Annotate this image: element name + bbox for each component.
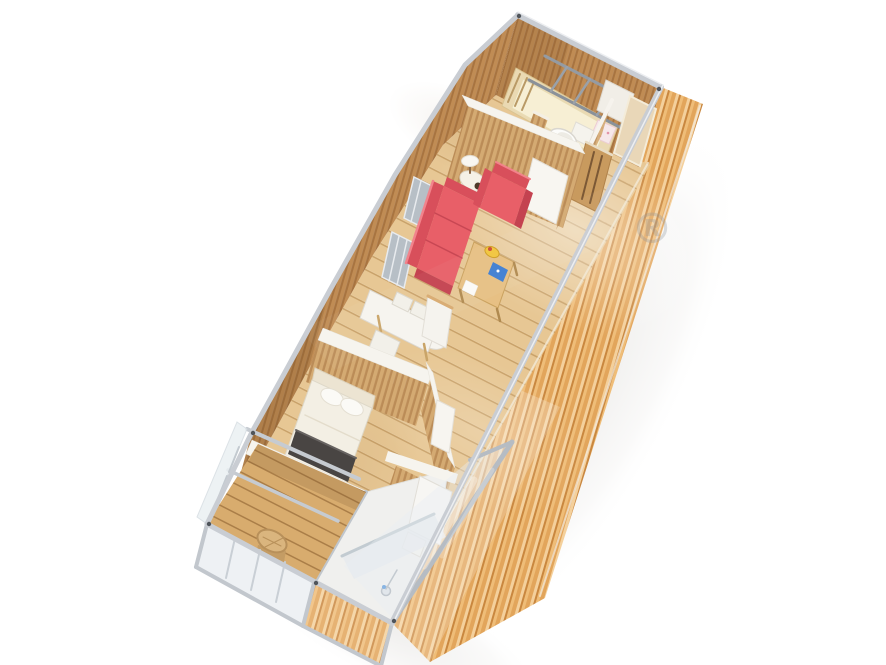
scene-canvas: ®	[0, 0, 886, 665]
corner-bolt-south	[392, 619, 396, 623]
laundry-bag-dot-2	[607, 132, 610, 135]
corner-bolt-mid	[314, 581, 318, 585]
lamp-shade	[462, 156, 479, 167]
corner-bolt-west	[207, 522, 211, 526]
corner-bolt-balcony	[251, 431, 255, 435]
container-home-3d-render: ®	[0, 0, 886, 665]
watermark-registered: ®	[631, 204, 673, 253]
corner-bolt-north	[517, 14, 521, 18]
corner-bolt-east	[657, 87, 661, 91]
